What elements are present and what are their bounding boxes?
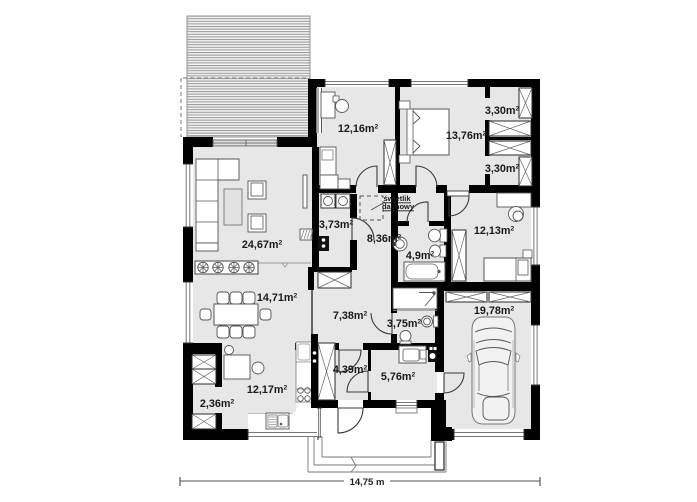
svg-text:12,17m2: 12,17m2 — [247, 384, 288, 396]
svg-text:dachowy: dachowy — [382, 202, 415, 211]
svg-text:3,30m2: 3,30m2 — [485, 163, 520, 175]
svg-text:3,75m2: 3,75m2 — [387, 318, 422, 330]
svg-text:12,13m2: 12,13m2 — [474, 225, 515, 237]
svg-text:12,16m2: 12,16m2 — [338, 123, 379, 135]
svg-text:4,39m2: 4,39m2 — [333, 364, 368, 376]
svg-text:2,36m2: 2,36m2 — [200, 398, 235, 410]
svg-text:19,78m2: 19,78m2 — [474, 305, 515, 317]
svg-text:14,71m2: 14,71m2 — [257, 292, 298, 304]
svg-text:24,67m2: 24,67m2 — [242, 239, 283, 251]
svg-text:5,76m2: 5,76m2 — [381, 371, 416, 383]
svg-text:7,38m2: 7,38m2 — [333, 310, 368, 322]
svg-text:3,30m2: 3,30m2 — [485, 105, 520, 117]
svg-text:4,9m2: 4,9m2 — [406, 250, 435, 262]
svg-text:13,76m2: 13,76m2 — [446, 130, 487, 142]
svg-text:14,75 m: 14,75 m — [350, 477, 385, 488]
svg-text:3,73m2: 3,73m2 — [319, 219, 354, 231]
svg-text:8,36m2: 8,36m2 — [367, 233, 402, 245]
